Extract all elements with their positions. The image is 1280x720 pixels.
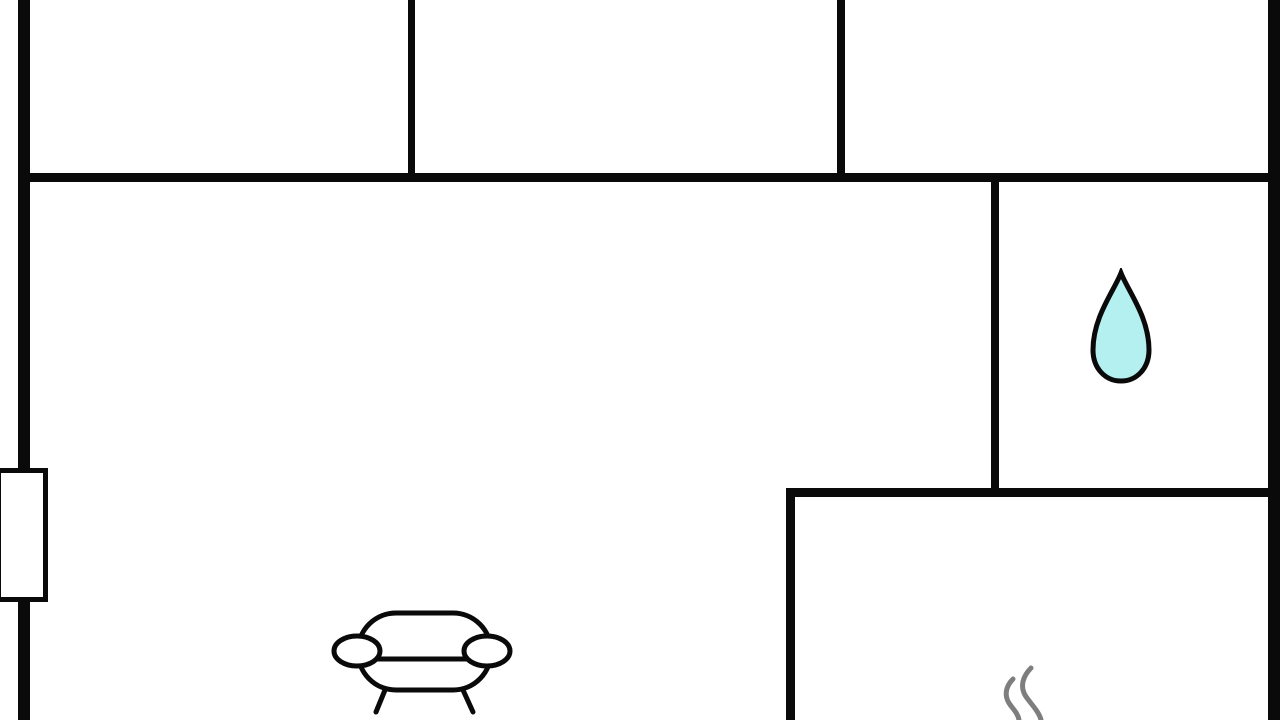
wall-bathroom-left xyxy=(991,173,999,497)
window-marker xyxy=(0,468,48,602)
room-top-right xyxy=(845,0,1268,173)
room-top-middle xyxy=(415,0,837,173)
sofa-leg-right xyxy=(463,690,473,712)
sofa-armrest-right xyxy=(464,636,510,666)
wall-divider-top-2 xyxy=(837,0,845,182)
water-drop-shape xyxy=(1093,273,1149,381)
wall-divider-top-1 xyxy=(408,0,415,182)
floor-plan xyxy=(0,0,1280,720)
steam-icon xyxy=(990,650,1060,720)
room-top-left xyxy=(30,0,408,173)
sofa-armrest-left xyxy=(334,636,380,666)
sofa-leg-left xyxy=(376,690,385,712)
steam-wave-left xyxy=(1006,679,1019,720)
wall-exterior-left xyxy=(18,0,30,720)
wall-exterior-right xyxy=(1268,0,1280,720)
steam-wave-right xyxy=(1023,668,1041,720)
water-drop-icon xyxy=(1088,268,1154,388)
wall-horizontal-main xyxy=(18,173,1280,182)
sofa-icon xyxy=(330,605,515,720)
